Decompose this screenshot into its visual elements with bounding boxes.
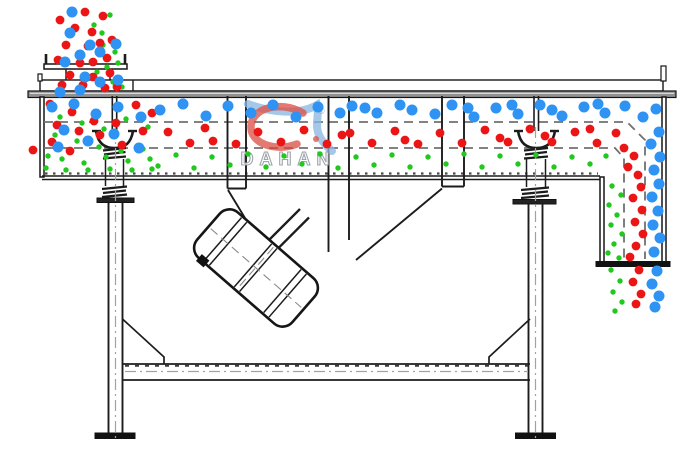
green-particle — [569, 154, 574, 159]
blue-particle — [655, 233, 666, 244]
blue-particle — [80, 72, 91, 83]
green-particle — [103, 154, 108, 159]
red-particle — [118, 141, 127, 150]
green-particle — [57, 114, 62, 119]
red-particle — [639, 230, 648, 239]
gusset-left — [123, 319, 165, 364]
green-particle — [335, 165, 340, 170]
blue-particle — [313, 102, 324, 113]
green-particle — [533, 152, 538, 157]
red-particle — [66, 147, 75, 156]
gusset-right — [489, 319, 530, 364]
blue-particle — [395, 100, 406, 111]
green-particle — [407, 164, 412, 169]
blue-particle — [360, 103, 371, 114]
blue-particle — [655, 152, 666, 163]
green-particle — [281, 153, 286, 158]
spring-coil — [102, 187, 127, 198]
blue-particle — [557, 111, 568, 122]
blue-particle — [647, 279, 658, 290]
red-particle — [632, 300, 641, 309]
green-particle — [603, 153, 608, 158]
blue-particle — [223, 101, 234, 112]
red-particle — [624, 163, 633, 172]
green-particle — [45, 153, 50, 158]
green-particle — [515, 161, 520, 166]
red-particle — [99, 12, 108, 21]
red-particle — [62, 41, 71, 50]
blue-particle — [507, 100, 518, 111]
red-particle — [634, 171, 643, 180]
blue-particle — [646, 139, 657, 150]
red-particle — [526, 125, 535, 134]
green-particle — [425, 154, 430, 159]
blue-particle — [335, 108, 346, 119]
red-particle — [637, 290, 646, 299]
blue-particle — [95, 77, 106, 88]
green-particle — [112, 49, 117, 54]
red-particle — [401, 136, 410, 145]
blue-particle — [651, 104, 662, 115]
green-particle — [605, 250, 610, 255]
green-particle — [115, 60, 120, 65]
green-particle — [611, 241, 616, 246]
blue-particle — [136, 112, 147, 123]
green-particle — [91, 22, 96, 27]
green-particle — [497, 153, 502, 158]
green-particle — [587, 161, 592, 166]
green-particle — [147, 156, 152, 161]
green-particle — [74, 138, 79, 143]
blue-particle — [593, 99, 604, 110]
blue-particle — [430, 109, 441, 120]
green-particle — [617, 278, 622, 283]
vibrating-screen-diagram: ® DAHAN — [0, 0, 700, 470]
red-particle — [638, 206, 647, 215]
green-particle — [191, 165, 196, 170]
green-particle — [608, 222, 613, 227]
blue-particle — [372, 108, 383, 119]
green-particle — [43, 165, 48, 170]
blue-particle — [155, 105, 166, 116]
blue-particle — [75, 85, 86, 96]
red-particle — [254, 128, 263, 137]
red-particle — [541, 132, 550, 141]
green-particle — [52, 132, 57, 137]
green-particle — [353, 154, 358, 159]
red-particle — [436, 129, 445, 138]
green-particle — [129, 167, 134, 172]
blue-particle — [65, 28, 76, 39]
blue-particle — [649, 247, 660, 258]
green-particle — [609, 183, 614, 188]
green-particle — [125, 158, 130, 163]
red-particle — [626, 253, 635, 262]
blue-particle — [463, 103, 474, 114]
green-particle — [443, 161, 448, 166]
green-particle — [107, 12, 112, 17]
green-particle — [96, 144, 101, 149]
red-particle — [414, 140, 423, 149]
green-particle — [123, 116, 128, 121]
red-particle — [29, 146, 38, 155]
red-particle — [96, 131, 105, 140]
red-particle — [496, 134, 505, 143]
red-particle — [630, 152, 639, 161]
blue-particle — [447, 100, 458, 111]
red-particle — [323, 140, 332, 149]
blue-particle — [67, 7, 78, 18]
green-particle — [59, 156, 64, 161]
red-particle — [186, 139, 195, 148]
blue-particle — [579, 102, 590, 113]
red-particle — [164, 128, 173, 137]
green-particle — [173, 152, 178, 157]
red-particle — [300, 126, 309, 135]
red-particle — [56, 16, 65, 25]
blue-particle — [620, 101, 631, 112]
diagram-canvas: ® DAHAN — [0, 0, 700, 470]
red-particle — [75, 127, 84, 136]
blue-particle — [648, 220, 659, 231]
green-particle — [101, 126, 106, 131]
red-particle — [458, 139, 467, 148]
green-particle — [612, 308, 617, 313]
blue-particle — [649, 165, 660, 176]
red-particle — [593, 139, 602, 148]
blue-particle — [600, 108, 611, 119]
green-particle — [614, 212, 619, 217]
red-particle — [106, 69, 115, 78]
blue-particle — [91, 109, 102, 120]
blue-particle — [113, 75, 124, 86]
blue-particle — [654, 291, 665, 302]
blue-particle — [547, 105, 558, 116]
red-particle — [209, 137, 218, 146]
red-particle — [629, 278, 638, 287]
green-particle — [99, 30, 104, 35]
screen-lid — [28, 66, 676, 98]
blue-particle — [347, 101, 358, 112]
green-particle — [461, 151, 466, 156]
green-particle — [227, 162, 232, 167]
red-particle — [338, 131, 347, 140]
red-particle — [66, 71, 75, 80]
blue-particle — [178, 99, 189, 110]
green-particle — [616, 255, 621, 260]
red-particle — [88, 28, 97, 37]
blue-particle — [60, 57, 71, 68]
red-particle — [96, 39, 105, 48]
red-particle — [635, 266, 644, 275]
green-particle — [606, 202, 611, 207]
red-particle — [637, 183, 646, 192]
red-particle — [346, 129, 355, 138]
blue-particle — [513, 109, 524, 120]
logo-dot — [313, 136, 319, 142]
base-beam — [123, 364, 531, 380]
red-particle — [391, 127, 400, 136]
green-particle — [389, 152, 394, 157]
green-particle — [81, 160, 86, 165]
red-particle — [629, 194, 638, 203]
green-particle — [63, 167, 68, 172]
blue-particle — [113, 102, 124, 113]
green-particle — [608, 267, 613, 272]
lid-clamp-bar — [28, 91, 676, 98]
red-particle — [232, 140, 241, 149]
blue-particle — [246, 108, 257, 119]
red-particle — [139, 127, 148, 136]
blue-particle — [111, 39, 122, 50]
red-particle — [612, 129, 621, 138]
green-particle — [263, 164, 268, 169]
green-particle — [107, 166, 112, 171]
red-particle — [620, 144, 629, 153]
blue-particle — [535, 100, 546, 111]
blue-particle — [201, 111, 212, 122]
red-particle — [132, 101, 141, 110]
blue-particle — [53, 142, 64, 153]
blue-particle — [109, 129, 120, 140]
green-particle — [618, 192, 623, 197]
green-particle — [551, 164, 556, 169]
red-particle — [631, 218, 640, 227]
red-particle — [504, 138, 513, 147]
blue-particle — [291, 112, 302, 123]
screen-machine — [28, 54, 676, 440]
green-particle — [371, 162, 376, 167]
blue-particle — [83, 136, 94, 147]
blue-particle — [407, 105, 418, 116]
red-particle — [81, 8, 90, 17]
green-particle — [85, 167, 90, 172]
blue-particle — [469, 112, 480, 123]
blue-particle — [69, 99, 80, 110]
red-particle — [481, 126, 490, 135]
red-particle — [89, 58, 98, 67]
blue-particle — [652, 266, 663, 277]
red-particle — [548, 138, 557, 147]
green-particle — [610, 289, 615, 294]
green-particle — [299, 161, 304, 166]
green-particle — [317, 151, 322, 156]
blue-particle — [491, 103, 502, 114]
green-particle — [149, 166, 154, 171]
green-particle — [155, 163, 160, 168]
red-particle — [368, 139, 377, 148]
blue-particle — [653, 206, 664, 217]
green-particle — [245, 151, 250, 156]
blue-particle — [268, 100, 279, 111]
red-particle — [277, 138, 286, 147]
red-particle — [586, 125, 595, 134]
blue-particle — [638, 112, 649, 123]
red-particle — [112, 119, 121, 128]
red-particle — [632, 242, 641, 251]
green-particle — [479, 164, 484, 169]
green-particle — [619, 231, 624, 236]
blue-particle — [47, 102, 58, 113]
red-particle — [571, 128, 580, 137]
blue-particle — [55, 87, 66, 98]
red-particle — [201, 124, 210, 133]
blue-particle — [75, 50, 86, 61]
blue-particle — [59, 125, 70, 136]
green-particle — [209, 154, 214, 159]
blue-particle — [85, 40, 96, 51]
blue-particle — [654, 179, 665, 190]
blue-particle — [654, 127, 665, 138]
blue-particle — [650, 302, 661, 313]
green-particle — [619, 299, 624, 304]
blue-particle — [134, 143, 145, 154]
blue-particle — [95, 47, 106, 58]
blue-particle — [647, 192, 658, 203]
green-particle — [79, 120, 84, 125]
